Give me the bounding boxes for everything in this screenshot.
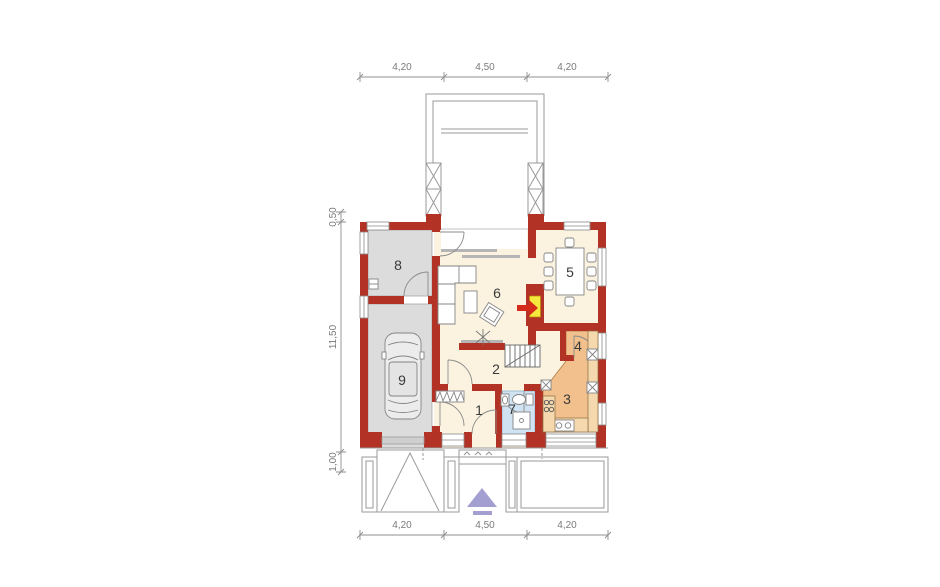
canopy-column-left xyxy=(426,163,441,216)
kitchen-counter-left xyxy=(543,396,555,432)
floor-plan-page: 4,20 4,50 4,20 4,20 4,50 4,20 0,50 11,50… xyxy=(0,0,940,587)
dim-top-center: 4,50 xyxy=(475,62,495,73)
canopy-outer-outline xyxy=(426,94,544,216)
window-hall-bottom xyxy=(442,434,464,446)
dim-left-middle: 11,50 xyxy=(328,324,339,349)
terrace xyxy=(517,457,608,512)
room-label-3: 3 xyxy=(563,391,571,407)
room-label-2: 2 xyxy=(492,361,500,377)
fridge-icon xyxy=(541,380,551,390)
exterior xyxy=(360,448,608,515)
coffee-table xyxy=(464,291,477,313)
window-pantry-right xyxy=(598,333,606,359)
boiler xyxy=(369,279,378,289)
window-dining-right xyxy=(598,248,606,286)
dim-left-top: 0,50 xyxy=(328,207,339,227)
canopy xyxy=(426,94,544,216)
dim-left-bottom: 1,00 xyxy=(328,452,339,472)
entrance-arrow-icon xyxy=(467,488,497,515)
wardrobe xyxy=(436,391,464,402)
room-label-1: 1 xyxy=(475,402,483,418)
washing-machine-icon xyxy=(587,349,598,360)
porch-column-right xyxy=(506,457,518,512)
room-label-6: 6 xyxy=(493,285,501,301)
porch-column-left xyxy=(362,457,377,512)
dimension-line-bottom xyxy=(357,530,611,540)
dim-bottom-right: 4,20 xyxy=(557,520,577,531)
window-kitchen-right xyxy=(598,403,606,425)
floor-plan-drawing: 4,20 4,50 4,20 4,20 4,50 4,20 0,50 11,50… xyxy=(0,0,940,587)
window-garage-left xyxy=(360,296,368,318)
terrace-opening xyxy=(441,230,527,249)
porch-column-middle xyxy=(444,457,459,512)
dimension-line-top xyxy=(357,72,611,82)
window-dining-top xyxy=(564,222,590,230)
room-label-4: 4 xyxy=(574,338,582,354)
canopy-inner-outline xyxy=(433,101,537,216)
kitchen-sink xyxy=(553,420,574,431)
garage-door xyxy=(382,437,424,444)
garage-apron xyxy=(377,450,444,512)
dishwasher-icon xyxy=(587,382,598,393)
room-label-8: 8 xyxy=(394,257,402,273)
stair-handrail xyxy=(461,340,503,343)
window-utility-left xyxy=(360,232,368,254)
window-bathroom-bottom xyxy=(502,434,526,446)
dim-top-right: 4,20 xyxy=(557,62,577,73)
canopy-column-right xyxy=(528,163,543,216)
dim-bottom-left: 4,20 xyxy=(392,520,412,531)
kitchen-counter-right xyxy=(587,331,598,432)
dim-top-left: 4,20 xyxy=(392,62,412,73)
terrace-door-bottom xyxy=(546,434,596,446)
dim-bottom-center: 4,50 xyxy=(475,520,495,531)
room-label-9: 9 xyxy=(398,372,406,388)
entry-steps xyxy=(459,450,506,464)
room-label-7: 7 xyxy=(508,401,516,417)
window-utility-top xyxy=(367,222,389,230)
room-label-5: 5 xyxy=(566,264,574,280)
